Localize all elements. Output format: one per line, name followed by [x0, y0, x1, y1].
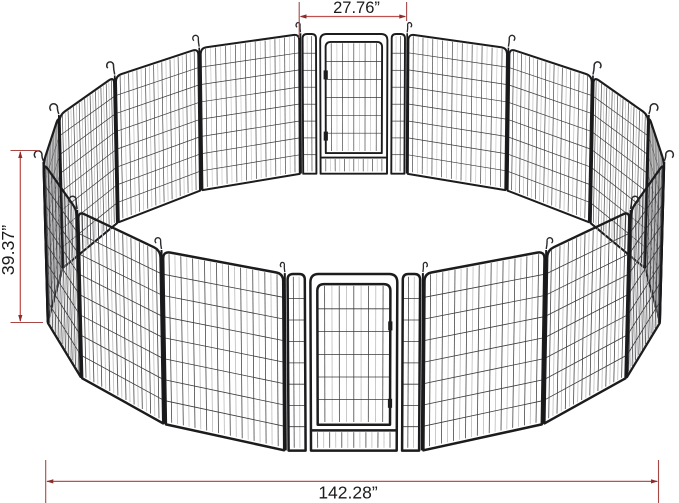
svg-text:142.28”: 142.28” — [318, 483, 378, 503]
svg-text:39.37”: 39.37” — [0, 225, 18, 275]
svg-text:27.76”: 27.76” — [333, 0, 380, 17]
